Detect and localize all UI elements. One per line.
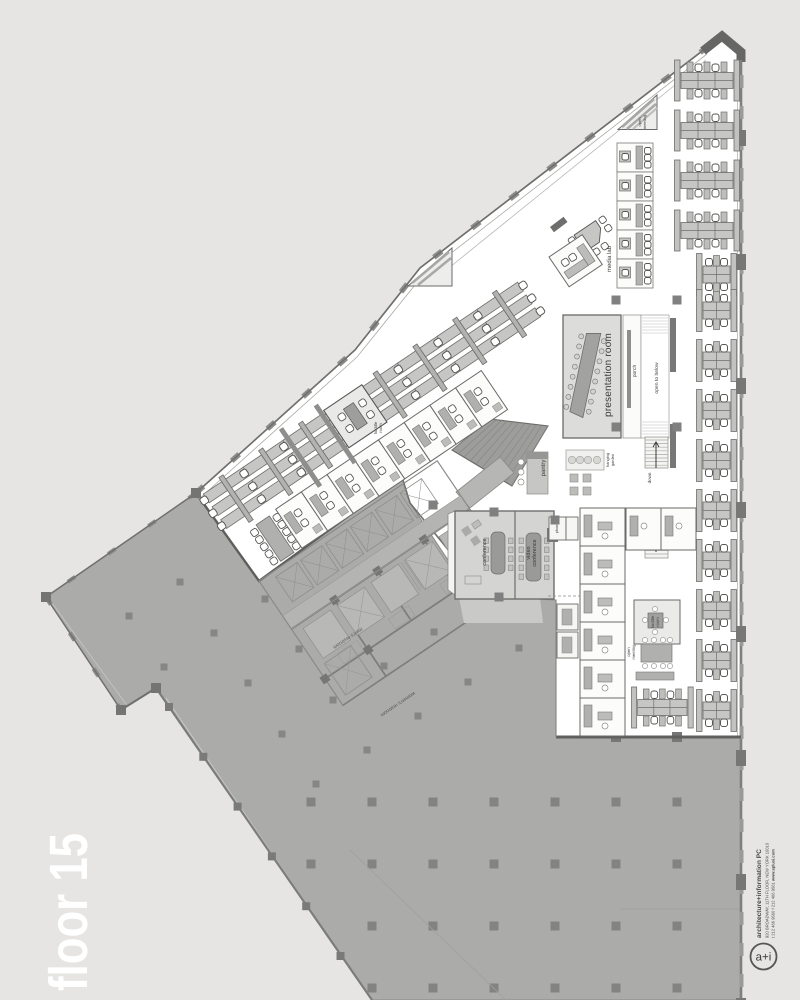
svg-text:meeting: meeting	[631, 644, 636, 660]
svg-text:room: room	[655, 617, 660, 627]
svg-text:floor 15: floor 15	[39, 833, 99, 991]
svg-text:architecture+information PC: architecture+information PC	[756, 849, 763, 938]
svg-text:conference: conference	[482, 538, 488, 565]
svg-text:down: down	[647, 472, 652, 483]
svg-text:open to below: open to below	[654, 362, 660, 394]
svg-text:meeting: meeting	[642, 115, 647, 129]
svg-text:media lab: media lab	[606, 245, 613, 272]
svg-text:a+i: a+i	[756, 952, 772, 964]
svg-text:porch: porch	[632, 365, 638, 378]
svg-text:920 BROADWAY, 11TH FLOOR, NEW: 920 BROADWAY, 11TH FLOOR, NEW YORK 10010	[765, 842, 770, 938]
svg-text:presentation room: presentation room	[603, 333, 614, 417]
svg-text:pantry: pantry	[541, 460, 547, 477]
svg-text:room: room	[378, 423, 383, 433]
svg-text:conference: conference	[532, 539, 538, 566]
svg-text:t 212 466 9560 f 212 466 9561: t 212 466 9560 f 212 466 9561 www.aplusi…	[771, 849, 776, 938]
svg-text:garden: garden	[610, 454, 615, 466]
